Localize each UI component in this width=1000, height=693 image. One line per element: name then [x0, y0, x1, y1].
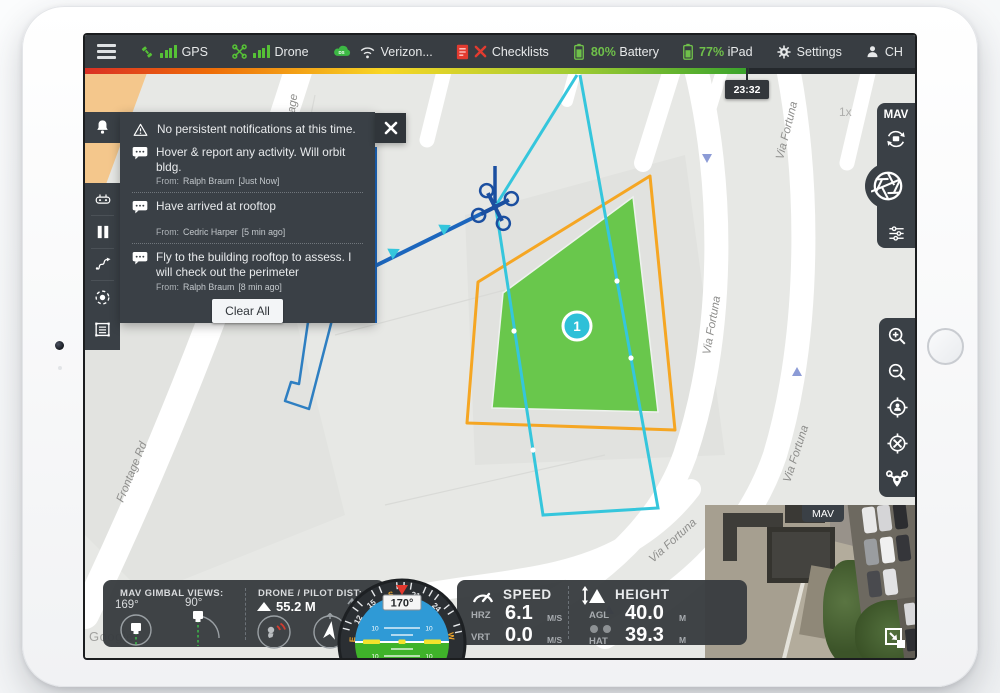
battery-percent: 80% — [591, 45, 616, 59]
message-text: Hover & report any activity. Will orbit … — [156, 145, 363, 174]
notification-header: No persistent notifications at this time… — [132, 122, 363, 138]
notification-header-text: No persistent notifications at this time… — [157, 122, 356, 137]
vrt-label: VRT — [471, 632, 490, 643]
network-label: Verizon... — [381, 45, 433, 59]
drone-map-button[interactable] — [880, 462, 914, 497]
close-icon — [384, 121, 398, 135]
pause-icon — [96, 224, 110, 240]
svg-text:10: 10 — [371, 654, 379, 659]
message-sender: Cedric Harper — [183, 227, 238, 237]
settings-button[interactable]: Settings — [776, 44, 842, 60]
speed-height-panel: SPEED HRZ 6.1 M/S VRT 0.0 M/S HEIGHT AGL… — [457, 580, 747, 645]
height-mode-dot[interactable] — [590, 625, 598, 633]
user-label: CH — [885, 45, 903, 59]
rail-survey-box — [85, 313, 120, 350]
pip-expand-button[interactable] — [883, 626, 907, 650]
warning-icon — [132, 122, 149, 138]
waypoint-number: 1 — [573, 319, 581, 334]
rail-notifications-box — [85, 112, 120, 143]
agl-unit: M — [679, 613, 686, 623]
camera-panel: MAV — [877, 103, 915, 248]
drone-icon — [231, 44, 248, 59]
notifications-button[interactable] — [85, 112, 120, 143]
gimbal-angle-1: 169° — [115, 599, 139, 611]
vrt-value: 0.0 — [505, 624, 533, 647]
map-zoom-indicator: 1x — [839, 105, 852, 119]
hrz-unit: M/S — [547, 613, 562, 623]
ipad-battery-icon — [682, 43, 694, 60]
zoom-out-icon — [886, 361, 908, 383]
mission-timeline-bar[interactable] — [85, 68, 915, 74]
controller-button[interactable] — [85, 183, 120, 215]
shutter-button[interactable] — [865, 163, 911, 209]
from-label: From: — [156, 227, 179, 237]
ipad-frame: Frontage Rd Frontage Via Fortuna Via For… — [22, 6, 978, 687]
height-title: HEIGHT — [615, 587, 670, 602]
hrz-value: 6.1 — [505, 602, 533, 625]
pip-car — [904, 602, 915, 625]
notification-message[interactable]: Hover & report any activity. Will orbit … — [132, 145, 363, 186]
svg-text:10: 10 — [371, 626, 379, 633]
route-button[interactable] — [85, 249, 120, 281]
satellite-icon — [139, 44, 155, 60]
status-bar: GPS Drone DS V — [85, 35, 915, 68]
drone-battery-status[interactable]: 80% Battery — [572, 43, 659, 60]
ipad-sensor-dot — [58, 366, 62, 370]
chat-icon — [132, 200, 148, 214]
camera-switch-button[interactable] — [879, 125, 913, 154]
hrz-label: HRZ — [471, 610, 491, 621]
survey-grid-icon — [93, 320, 112, 339]
gear-icon — [776, 44, 792, 60]
rail-flight-tools — [85, 183, 120, 313]
height-mode-dot[interactable] — [603, 625, 611, 633]
message-text: Have arrived at rooftop — [156, 199, 285, 214]
expand-icon — [883, 626, 907, 650]
drone-pin-icon — [885, 468, 909, 491]
panel-divider — [245, 588, 246, 640]
route-icon — [93, 255, 113, 273]
pause-button[interactable] — [85, 216, 120, 248]
pilot-target-icon — [886, 396, 909, 419]
checklists-label: Checklists — [492, 45, 549, 59]
from-label: From: — [156, 282, 179, 292]
pip-roof-structure — [723, 513, 737, 561]
gps-label: GPS — [182, 45, 208, 59]
locate-drone-button[interactable] — [880, 426, 914, 461]
hat-value: 39.3 — [625, 624, 664, 647]
gimbal-gauge-1 — [117, 613, 155, 647]
from-label: From: — [156, 176, 179, 186]
bell-icon — [93, 118, 112, 137]
vrt-unit: M/S — [547, 635, 562, 645]
zoom-in-button[interactable] — [880, 318, 914, 353]
distance-value: 55.2 M — [276, 599, 316, 614]
controller-icon — [93, 190, 113, 208]
svg-text:10: 10 — [425, 654, 433, 659]
ipad-home-button[interactable] — [927, 328, 964, 365]
checklists-status[interactable]: Checklists — [456, 44, 549, 60]
wifi-icon — [359, 45, 376, 59]
svg-text:10: 10 — [425, 626, 433, 633]
waypoint-marker-1[interactable]: 1 — [563, 312, 591, 340]
network-status[interactable]: DS Verizon... — [332, 44, 433, 59]
message-time: [5 min ago] — [242, 227, 286, 237]
notification-message[interactable]: Have arrived at rooftop From:Cedric Harp… — [132, 199, 363, 237]
sliders-icon — [886, 224, 907, 243]
up-triangle-icon — [256, 601, 272, 612]
drone-signal-bars — [253, 45, 270, 58]
orbit-icon — [93, 288, 112, 307]
chat-icon — [132, 251, 148, 265]
mission-time-badge: 23:32 — [725, 80, 769, 99]
menu-button[interactable] — [97, 41, 116, 63]
battery-icon — [572, 43, 586, 60]
orbit-button[interactable] — [85, 281, 120, 313]
notification-close-button[interactable] — [375, 113, 406, 143]
map-tools-panel — [879, 318, 915, 497]
x-icon — [474, 45, 487, 58]
gimbal-angle-2: 90° — [185, 597, 202, 609]
checklist-icon — [456, 44, 469, 60]
notification-message[interactable]: Fly to the building rooftop to assess. I… — [132, 250, 363, 291]
agl-label: AGL — [589, 610, 609, 621]
aperture-icon — [871, 169, 905, 203]
hat-label: HAT — [589, 636, 608, 647]
locate-pilot-button[interactable] — [880, 390, 914, 425]
camera-switch-icon — [885, 128, 907, 150]
ipad-battery-status[interactable]: 77% iPad — [682, 43, 753, 60]
battery-label: Battery — [619, 45, 659, 59]
message-sender: Ralph Braum — [183, 282, 234, 292]
divider — [132, 192, 363, 193]
speed-title: SPEED — [503, 587, 552, 602]
chat-icon — [132, 146, 148, 160]
user-menu[interactable]: CH — [865, 44, 903, 59]
app-screen: Frontage Rd Frontage Via Fortuna Via For… — [85, 35, 915, 658]
hat-unit: M — [679, 635, 686, 645]
pip-title-tab[interactable]: MAV — [802, 505, 844, 522]
message-sender: Ralph Braum — [183, 176, 234, 186]
camera-panel-title: MAV — [884, 109, 909, 121]
speedometer-icon — [471, 587, 495, 604]
pip-car — [892, 505, 908, 530]
survey-button[interactable] — [85, 313, 120, 345]
gimbal-gauge-2 — [175, 610, 221, 647]
ipad-percent: 77% — [699, 45, 724, 59]
ipad-label: iPad — [728, 45, 753, 59]
pip-title: MAV — [812, 508, 834, 520]
pilot-signal-gauge — [255, 613, 293, 651]
user-icon — [865, 44, 880, 59]
cloud-text: DS — [338, 50, 344, 55]
zoom-out-button[interactable] — [880, 354, 914, 389]
settings-label: Settings — [797, 45, 842, 59]
message-text: Fly to the building rooftop to assess. I… — [156, 250, 363, 279]
agl-value: 40.0 — [625, 602, 664, 625]
cloud-icon: DS — [332, 44, 354, 59]
drone-target-icon — [886, 432, 909, 455]
gps-status[interactable]: GPS — [139, 44, 208, 60]
clear-all-button[interactable]: Clear All — [212, 299, 283, 323]
height-icon — [581, 586, 607, 605]
notification-panel: No persistent notifications at this time… — [120, 112, 375, 323]
gimbal-title: MAV GIMBAL VIEWS: — [120, 588, 224, 599]
message-time: [Just Now] — [238, 176, 279, 186]
attitude-indicator: 1010 1010 2020 3030 — [337, 578, 467, 658]
desktop-background: Frontage Rd Frontage Via Fortuna Via For… — [0, 0, 1000, 693]
ipad-camera-dot — [55, 341, 64, 350]
divider — [132, 243, 363, 244]
message-time: [8 min ago] — [238, 282, 282, 292]
zoom-in-icon — [886, 325, 908, 347]
drone-label: Drone — [275, 45, 309, 59]
gps-signal-bars — [160, 45, 177, 58]
camera-settings-button[interactable] — [879, 220, 913, 249]
heading-value: 170° — [391, 598, 414, 610]
panel-divider — [568, 586, 569, 639]
drone-status[interactable]: Drone — [231, 44, 309, 59]
